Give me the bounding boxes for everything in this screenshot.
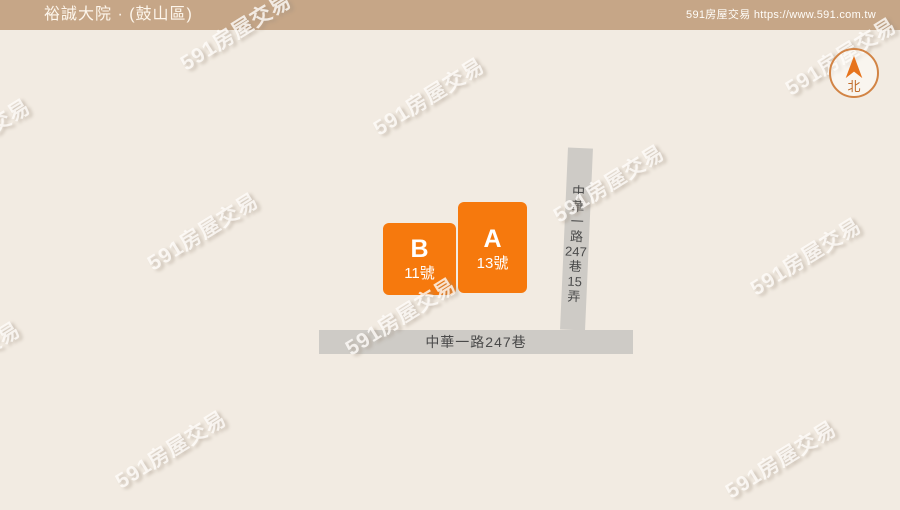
building-marker-a[interactable]: A 13號: [458, 202, 527, 293]
north-arrow-icon: [843, 55, 865, 79]
watermark: 591房屋交易: [747, 214, 867, 301]
watermark: 591房屋交易: [722, 417, 842, 504]
building-number: 11號: [404, 264, 435, 283]
building-marker-b[interactable]: B 11號: [383, 223, 456, 295]
road-horizontal: 中華一路247巷: [319, 330, 633, 354]
road-label-segment: 巷: [568, 259, 582, 275]
road-label: 中華一路247巷: [425, 330, 526, 354]
building-label: B: [410, 236, 428, 263]
north-label: 北: [847, 80, 860, 94]
page-title: 裕誠大院 · (鼓山區): [44, 0, 193, 30]
building-number: 13號: [477, 254, 509, 273]
watermark: 591房屋交易: [144, 189, 264, 276]
watermark: 591房屋交易: [0, 95, 35, 182]
road-label-segment: 路: [570, 229, 584, 245]
map-page: 裕誠大院 · (鼓山區) 591房屋交易 https://www.591.com…: [0, 0, 900, 510]
site-credit: 591房屋交易 https://www.591.com.tw: [686, 0, 876, 30]
watermark: 591房屋交易: [370, 54, 490, 141]
header-bar: 裕誠大院 · (鼓山區) 591房屋交易 https://www.591.com…: [0, 0, 900, 30]
compass: 北: [829, 48, 879, 98]
road-label-segment: 247: [565, 244, 587, 260]
road-label-segment: 中: [572, 184, 586, 200]
road-vertical: 中 華 一 路 247 巷 15 弄: [560, 148, 593, 331]
building-label: A: [483, 226, 501, 253]
watermark: 591房屋交易: [0, 318, 25, 405]
road-label-segment: 15: [567, 274, 582, 290]
watermark: 591房屋交易: [112, 407, 232, 494]
road-label-segment: 弄: [567, 289, 581, 305]
road-label-segment: 華: [571, 199, 585, 215]
road-label-segment: 一: [570, 214, 584, 230]
